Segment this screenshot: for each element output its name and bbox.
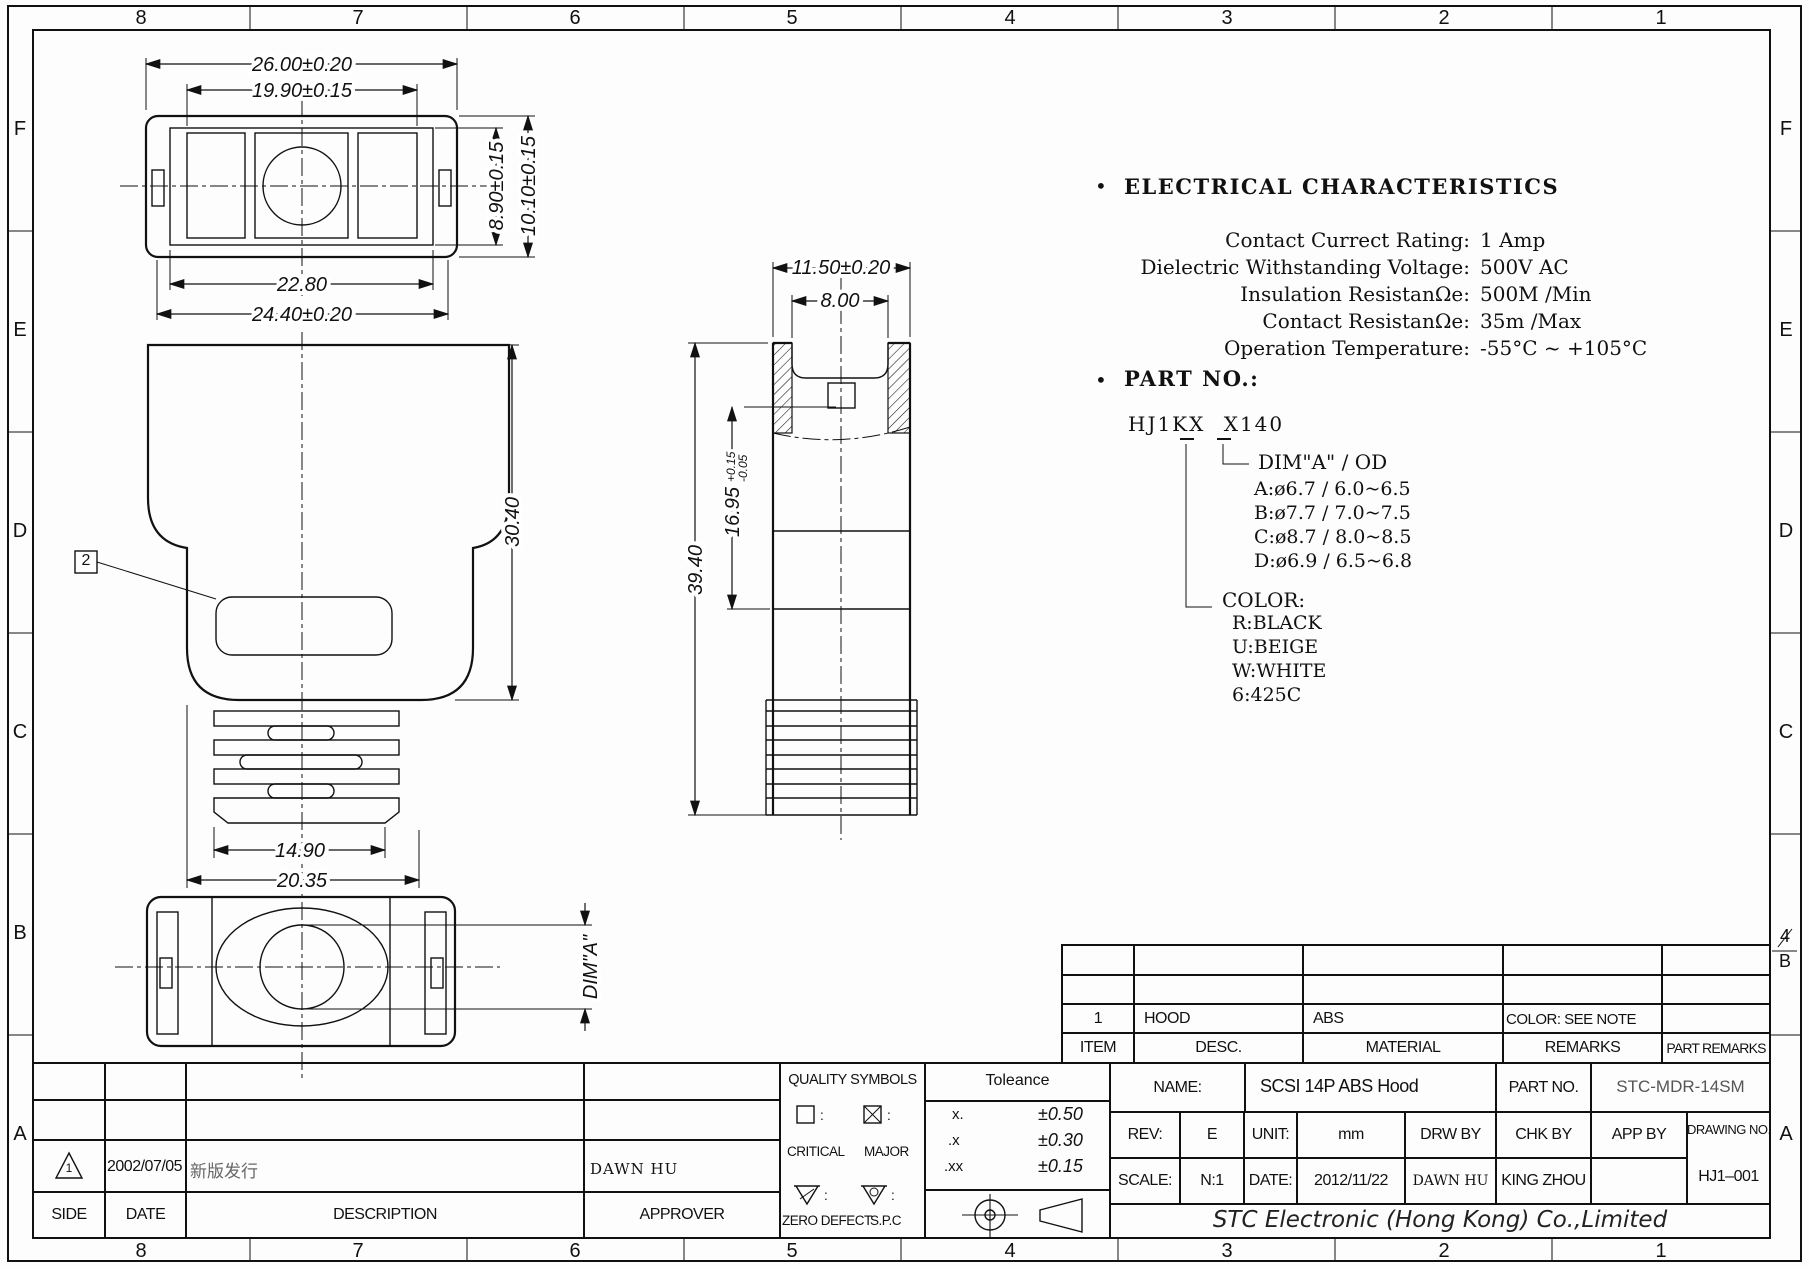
name-label: NAME: — [1110, 1079, 1245, 1097]
electrical-value: 500M /Min — [1480, 282, 1592, 306]
rev-description: 新版发行 — [190, 1157, 258, 1182]
dim-a-od-row: C:ø8.7 / 8.0~8.5 — [1254, 526, 1411, 548]
name-value: SCSI 14P ABS Hood — [1260, 1076, 1418, 1097]
tol-value: ±0.15 — [1038, 1156, 1083, 1177]
zone-col: 5 — [772, 1240, 812, 1263]
major-label: MAJOR — [864, 1144, 909, 1159]
rev-label: REV: — [1110, 1126, 1180, 1144]
zone-marker-rev: 4 — [1773, 926, 1797, 947]
zero-defect-triangle-icon — [794, 1186, 820, 1204]
dim-top-height-inner: 8.90±0.15 — [486, 141, 508, 231]
item-remarks: COLOR: SEE NOTE — [1506, 1011, 1636, 1028]
item-header: REMARKS — [1503, 1039, 1662, 1057]
color-row: 6:425C — [1232, 684, 1301, 706]
zone-col: 7 — [338, 1240, 378, 1263]
electrical-label: Insulation ResistanΩe: — [958, 282, 1470, 306]
zone-row: E — [0, 319, 40, 342]
first-angle-circle-icon — [962, 1194, 1018, 1237]
drw-by-label: DRW BY — [1405, 1126, 1496, 1144]
part-number-tree-lines — [1186, 444, 1249, 607]
zone-row: D — [1766, 520, 1806, 543]
electrical-label: Contact Currect Rating: — [958, 228, 1470, 252]
dim-top-width-inner: 22.80 — [276, 274, 327, 296]
dim-front-width-ribs: 14.90 — [275, 840, 325, 862]
zone-col: 2 — [1424, 7, 1464, 30]
dim-front-height-hood: 30.40 — [502, 497, 524, 547]
dim-side-height-total: 39.40 — [685, 545, 707, 595]
cone-projection-icon — [1040, 1199, 1082, 1232]
rev-header-approver: APPROVER — [584, 1206, 780, 1224]
projection-symbol-icons — [962, 1194, 1082, 1237]
colon: : — [887, 1108, 890, 1123]
zone-marker-zone: B — [1773, 951, 1797, 972]
chk-by-label: CHK BY — [1496, 1126, 1591, 1144]
part-no-value: STC-MDR-14SM — [1591, 1077, 1770, 1097]
zone-row: F — [0, 118, 40, 141]
dim-side-width-outer: 11.50±0.20 — [792, 257, 890, 279]
underline — [1217, 438, 1231, 440]
zone-col: 1 — [1641, 7, 1681, 30]
tol-value: ±0.50 — [1038, 1104, 1083, 1125]
bullet: • — [1095, 368, 1107, 392]
item-desc: HOOD — [1144, 1010, 1190, 1028]
critical-label: CRITICAL — [787, 1144, 845, 1159]
rev-header-side: SIDE — [33, 1206, 105, 1224]
dim-a-od-header: DIM"A" / OD — [1258, 450, 1387, 474]
electrical-title: ELECTRICAL CHARACTERISTICS — [1124, 174, 1559, 199]
zone-col: 2 — [1424, 1240, 1464, 1263]
zone-row: A — [0, 1123, 40, 1146]
colon: : — [820, 1108, 823, 1123]
dim-side-tol-minus: -0.05 — [736, 454, 750, 482]
dim-top-width-outer: 26.00±0.20 — [251, 54, 352, 76]
item-number: 1 — [1062, 1010, 1134, 1028]
spc-label: S.P.C — [870, 1213, 901, 1228]
zone-col: 4 — [990, 1240, 1030, 1263]
color-row: U:BEIGE — [1232, 636, 1318, 658]
side-view: 11.50±0.20 8.00 16.95 +0.15 -0.05 39.40 — [685, 257, 917, 840]
electrical-value: 1 Amp — [1480, 228, 1545, 252]
item-header: ITEM — [1062, 1039, 1134, 1057]
tol-digits: .x — [948, 1132, 960, 1149]
rev-header-date: DATE — [105, 1206, 186, 1224]
dim-top-width-window: 19.90±0.15 — [252, 80, 353, 102]
rev-value: E — [1180, 1126, 1244, 1144]
zone-row: C — [1766, 721, 1806, 744]
scale-label: SCALE: — [1110, 1172, 1180, 1190]
dim-a-od-row: B:ø7.7 / 7.0~7.5 — [1254, 502, 1411, 524]
major-crossed-square-icon — [864, 1106, 881, 1123]
critical-square-icon — [797, 1106, 814, 1123]
part-no-label: PART NO. — [1496, 1079, 1591, 1097]
top-view: 26.00±0.20 19.90±0.15 22.80 24.40±0.20 8… — [120, 54, 540, 326]
color-row: R:BLACK — [1232, 612, 1322, 634]
zone-row: C — [0, 721, 40, 744]
zone-row: F — [1766, 118, 1806, 141]
company-name: STC Electronic (Hong Kong) Co.,Limited — [1110, 1207, 1770, 1233]
item-header: PART REMARKS — [1662, 1040, 1770, 1056]
dim-top-width-body: 24.40±0.20 — [251, 304, 352, 326]
front-view: 30.40 14.90 20.35 — [75, 332, 524, 1078]
balloon-2: 2 — [76, 552, 96, 570]
color-header: COLOR: — [1222, 588, 1305, 612]
zone-row: D — [0, 520, 40, 543]
zone-col: 5 — [772, 7, 812, 30]
rev-header-description: DESCRIPTION — [186, 1206, 584, 1224]
spc-triangle-icon — [861, 1186, 887, 1204]
part-no-title: PART NO.: — [1124, 366, 1259, 391]
drawing-sheet: 26.00±0.20 19.90±0.15 22.80 24.40±0.20 8… — [0, 0, 1809, 1267]
zone-col: 1 — [1641, 1240, 1681, 1263]
bullet: • — [1095, 174, 1107, 198]
dim-front-width-bottom: 20.35 — [276, 870, 328, 892]
item-material: ABS — [1313, 1010, 1344, 1028]
dim-top-height-outer: 10.10±0.15 — [518, 135, 540, 236]
underline — [1180, 438, 1194, 440]
rev-date: 2002/07/05 — [107, 1158, 182, 1176]
colon: : — [891, 1188, 894, 1203]
tol-digits: x. — [952, 1106, 964, 1123]
electrical-value: 35m /Max — [1480, 309, 1581, 333]
unit-label: UNIT: — [1244, 1126, 1297, 1144]
zero-defect-label: ZERO DEFECT — [782, 1213, 872, 1228]
scale-value: N:1 — [1180, 1172, 1244, 1190]
item-header: MATERIAL — [1303, 1039, 1503, 1057]
quality-symbols-title: QUALITY SYMBOLS — [780, 1072, 925, 1088]
chk-by-value: KING ZHOU — [1496, 1172, 1591, 1190]
tol-value: ±0.30 — [1038, 1130, 1083, 1151]
date-value: 2012/11/22 — [1297, 1172, 1405, 1190]
zone-row: B — [0, 922, 40, 945]
zone-col: 6 — [555, 1240, 595, 1263]
dim-a-od-row: A:ø6.7 / 6.0~6.5 — [1254, 478, 1411, 500]
zone-col: 7 — [338, 7, 378, 30]
zone-col: 3 — [1207, 1240, 1247, 1263]
tol-digits: .xx — [944, 1158, 963, 1175]
electrical-label: Dielectric Withstanding Voltage: — [958, 255, 1470, 279]
bottom-view: DIM"A" — [115, 897, 602, 1046]
zone-col: 8 — [121, 7, 161, 30]
unit-value: mm — [1297, 1126, 1405, 1144]
color-row: W:WHITE — [1232, 660, 1326, 682]
electrical-value: 500V AC — [1480, 255, 1569, 279]
zone-col: 4 — [990, 7, 1030, 30]
drw-by-value: DAWN HU — [1405, 1173, 1496, 1189]
zone-col: 3 — [1207, 7, 1247, 30]
electrical-label: Operation Temperature: — [958, 336, 1470, 360]
rev-approver: DAWN HU — [590, 1160, 678, 1178]
app-by-label: APP BY — [1591, 1126, 1687, 1144]
zone-col: 6 — [555, 7, 595, 30]
colon: : — [824, 1188, 827, 1203]
drawing-no-value: HJ1–001 — [1687, 1168, 1770, 1186]
zone-row: A — [1766, 1123, 1806, 1146]
electrical-value: -55°C ~ +105°C — [1480, 336, 1647, 360]
date-label: DATE: — [1244, 1172, 1297, 1190]
dim-a-od-row: D:ø6.9 / 6.5~6.8 — [1254, 550, 1412, 572]
tolerance-title: Toleance — [925, 1072, 1110, 1090]
dim-side-height-mid: 16.95 — [722, 486, 744, 537]
item-header: DESC. — [1134, 1039, 1303, 1057]
dim-side-width-cavity: 8.00 — [821, 290, 860, 312]
revision-mark-number: 1 — [63, 1161, 75, 1175]
part-no-code: HJ1KX X140 — [1128, 412, 1284, 436]
electrical-label: Contact ResistanΩe: — [958, 309, 1470, 333]
zone-row: E — [1766, 319, 1806, 342]
dim-bottom-dim-a: DIM"A" — [580, 934, 602, 999]
drawing-no-label: DRAWING NO. — [1687, 1122, 1770, 1137]
zone-col: 8 — [121, 1240, 161, 1263]
